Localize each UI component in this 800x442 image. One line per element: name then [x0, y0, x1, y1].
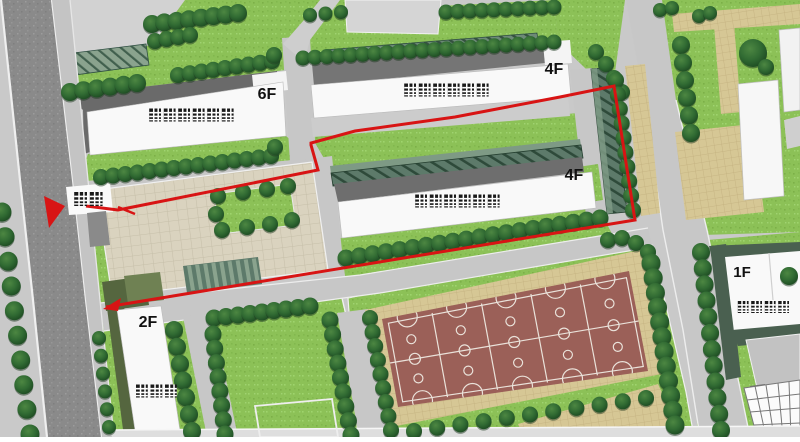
svg-text:1F: 1F: [733, 264, 751, 281]
svg-text:4F: 4F: [545, 61, 564, 78]
svg-text:2F: 2F: [139, 314, 158, 331]
svg-text:6F: 6F: [258, 86, 277, 103]
svg-text:4F: 4F: [565, 167, 584, 184]
